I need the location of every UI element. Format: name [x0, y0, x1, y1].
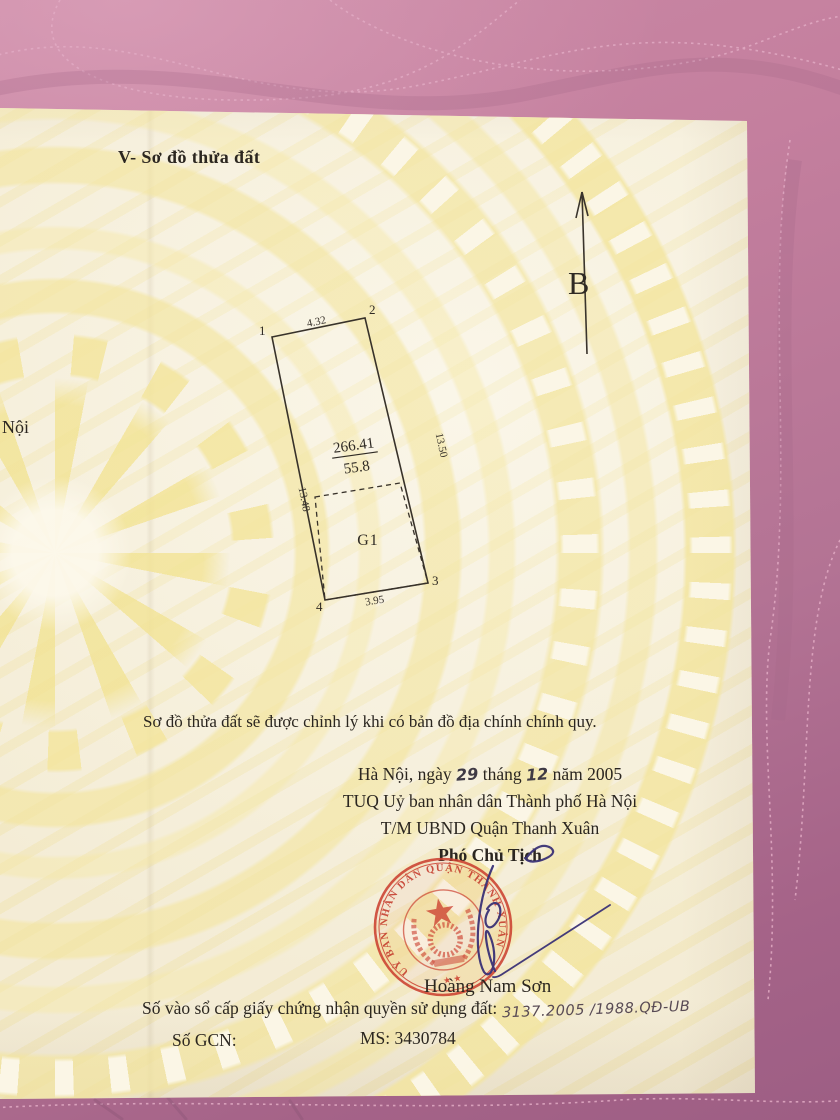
parcel-area-denominator: 55.8: [343, 458, 371, 477]
registry-handwritten-value: 3137.2005 /1988.QĐ-UB: [501, 999, 690, 1022]
edge-bottom-dimension: 3.95: [364, 594, 385, 609]
authority-line-1: TUQ Uỷ ban nhân dân Thành phố Hà Nội: [295, 788, 685, 815]
edge-top-dimension: 4.32: [306, 314, 327, 330]
handwritten-day: 29: [455, 760, 479, 788]
corner-2-label: 2: [369, 302, 376, 317]
gcn-label: Số GCN:: [172, 1030, 237, 1051]
title-flourish-stroke: [525, 846, 553, 862]
corner-3-label: 3: [432, 573, 439, 588]
date-middle: tháng: [483, 764, 522, 784]
certificate-paper: V- Sơ đồ thửa đất Nội B 1 2 3 4 4.32 13.…: [0, 0, 840, 1120]
north-label: B: [568, 265, 589, 301]
guilloche-star-core: [0, 473, 135, 633]
edge-left-dimension: 13.48: [296, 486, 313, 513]
plot-diagram: 1 2 3 4 4.32 13.50 13.48 3.95 266.41 55.…: [235, 295, 460, 625]
registry-label: Số vào sổ cấp giấy chứng nhận quyền sử d…: [142, 998, 497, 1018]
date-line: Hà Nội, ngày 29 tháng 12 năm 2005: [295, 761, 685, 788]
corner-4-label: 4: [316, 599, 323, 614]
parcel-boundary: [272, 318, 428, 600]
signer-name: Hoàng Nam Sơn: [424, 976, 551, 998]
ms-number: MS: 3430784: [360, 1028, 456, 1049]
subplot-label: G1: [357, 532, 379, 549]
photo-scene: V- Sơ đồ thửa đất Nội B 1 2 3 4 4.32 13.…: [0, 0, 840, 1120]
registry-line: Số vào sổ cấp giấy chứng nhận quyền sử d…: [142, 998, 690, 1019]
section-title: V- Sơ đồ thửa đất: [118, 147, 260, 168]
date-prefix: Hà Nội, ngày: [358, 764, 452, 784]
signature-small-loop: [485, 903, 500, 927]
corner-1-label: 1: [259, 323, 266, 338]
edge-right-dimension: 13.50: [433, 432, 450, 459]
handwritten-month: 12: [525, 760, 549, 788]
revision-note: Sơ đồ thửa đất sẽ được chỉnh lý khi có b…: [143, 712, 597, 732]
signature-long-stroke: [493, 905, 610, 977]
left-edge-text-fragment: Nội: [2, 417, 29, 438]
north-arrow: B: [556, 182, 620, 362]
date-suffix: năm 2005: [553, 764, 623, 784]
